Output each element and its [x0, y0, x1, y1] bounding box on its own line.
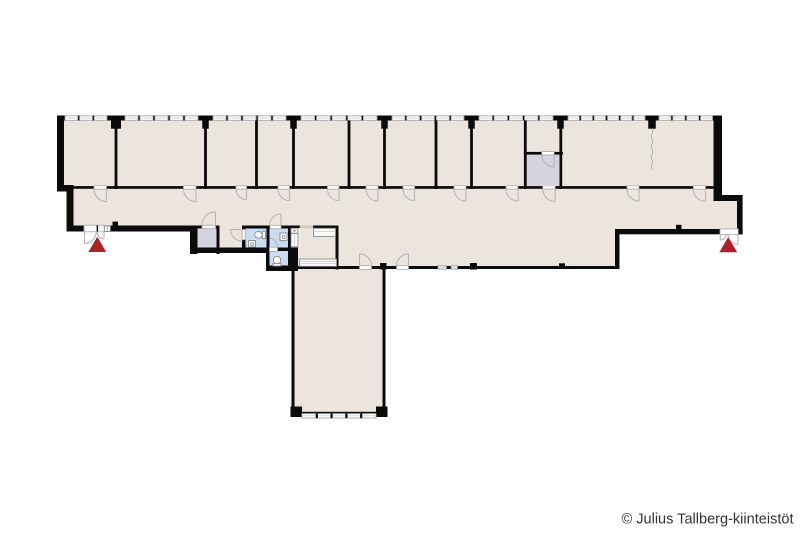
svg-text:© Julius Tallberg-kiinteistöt: © Julius Tallberg-kiinteistöt: [622, 512, 794, 528]
